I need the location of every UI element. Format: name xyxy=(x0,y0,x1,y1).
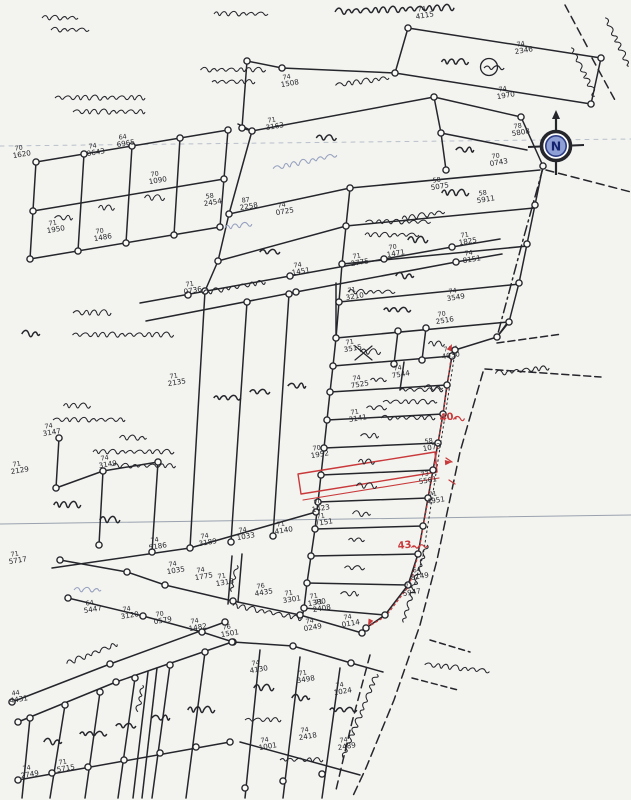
survey-node xyxy=(202,649,208,655)
survey-node xyxy=(230,598,236,604)
survey-node xyxy=(215,258,221,264)
survey-node xyxy=(239,125,245,131)
survey-node xyxy=(221,176,227,182)
survey-node xyxy=(226,211,232,217)
survey-node xyxy=(301,605,307,611)
survey-node xyxy=(540,163,546,169)
survey-node xyxy=(431,94,437,100)
survey-node xyxy=(304,580,310,586)
paper-background xyxy=(0,0,631,800)
survey-node xyxy=(382,612,388,618)
survey-node xyxy=(518,114,524,120)
survey-node xyxy=(228,539,234,545)
survey-node xyxy=(449,244,455,250)
survey-node xyxy=(242,785,248,791)
survey-node xyxy=(193,744,199,750)
survey-node xyxy=(85,764,91,770)
compass-east-tick xyxy=(572,145,584,146)
survey-node xyxy=(444,382,450,388)
survey-node xyxy=(308,553,314,559)
survey-node xyxy=(506,319,512,325)
plat-map-svg: 7441157423467419707415087131635824548722… xyxy=(0,0,631,800)
survey-node xyxy=(524,241,530,247)
survey-node xyxy=(598,55,604,61)
survey-node xyxy=(121,757,127,763)
survey-node xyxy=(290,643,296,649)
survey-node xyxy=(453,259,459,265)
survey-node xyxy=(318,472,324,478)
survey-node xyxy=(392,70,398,76)
survey-node xyxy=(336,299,342,305)
survey-node xyxy=(225,127,231,133)
survey-node xyxy=(286,291,292,297)
survey-node xyxy=(423,325,429,331)
survey-node xyxy=(27,256,33,262)
survey-node xyxy=(171,232,177,238)
survey-node xyxy=(395,328,401,334)
survey-node xyxy=(327,389,333,395)
survey-node xyxy=(279,65,285,71)
survey-node xyxy=(319,771,325,777)
survey-node xyxy=(132,675,138,681)
survey-node xyxy=(330,363,336,369)
survey-node xyxy=(333,335,339,341)
survey-node xyxy=(516,280,522,286)
survey-node xyxy=(244,299,250,305)
survey-node xyxy=(157,750,163,756)
survey-node xyxy=(244,58,250,64)
survey-node xyxy=(124,569,130,575)
compass-letter: N xyxy=(551,139,561,154)
survey-node xyxy=(167,662,173,668)
survey-node xyxy=(532,202,538,208)
survey-node xyxy=(588,101,594,107)
survey-node xyxy=(113,679,119,685)
survey-node xyxy=(324,417,330,423)
survey-node xyxy=(438,130,444,136)
survey-node xyxy=(430,467,436,473)
survey-node xyxy=(107,661,113,667)
survey-node xyxy=(280,778,286,784)
survey-node xyxy=(97,689,103,695)
survey-node xyxy=(187,545,193,551)
survey-node xyxy=(494,334,500,340)
survey-node xyxy=(229,639,235,645)
survey-node xyxy=(57,557,63,563)
compass-west-tick xyxy=(528,147,540,148)
survey-node xyxy=(75,248,81,254)
scanned-cadastral-map-page: 7441157423467419707415087131635824548722… xyxy=(0,0,631,800)
survey-node xyxy=(123,240,129,246)
survey-node xyxy=(359,630,365,636)
survey-node xyxy=(49,770,55,776)
survey-node xyxy=(177,135,183,141)
survey-node xyxy=(162,582,168,588)
survey-node xyxy=(53,485,59,491)
survey-node xyxy=(155,459,161,465)
survey-node xyxy=(347,185,353,191)
survey-node xyxy=(405,25,411,31)
survey-node xyxy=(419,357,425,363)
survey-node xyxy=(343,223,349,229)
survey-node xyxy=(227,739,233,745)
survey-node xyxy=(249,128,255,134)
survey-node xyxy=(33,159,39,165)
survey-node xyxy=(339,261,345,267)
survey-node xyxy=(443,167,449,173)
survey-node xyxy=(420,523,426,529)
survey-node xyxy=(62,702,68,708)
survey-node xyxy=(217,224,223,230)
survey-node xyxy=(30,208,36,214)
survey-node xyxy=(15,719,21,725)
survey-node xyxy=(293,289,299,295)
survey-node xyxy=(65,595,71,601)
survey-node xyxy=(348,660,354,666)
survey-node xyxy=(415,551,421,557)
survey-node xyxy=(140,613,146,619)
survey-node xyxy=(96,542,102,548)
survey-node xyxy=(27,715,33,721)
